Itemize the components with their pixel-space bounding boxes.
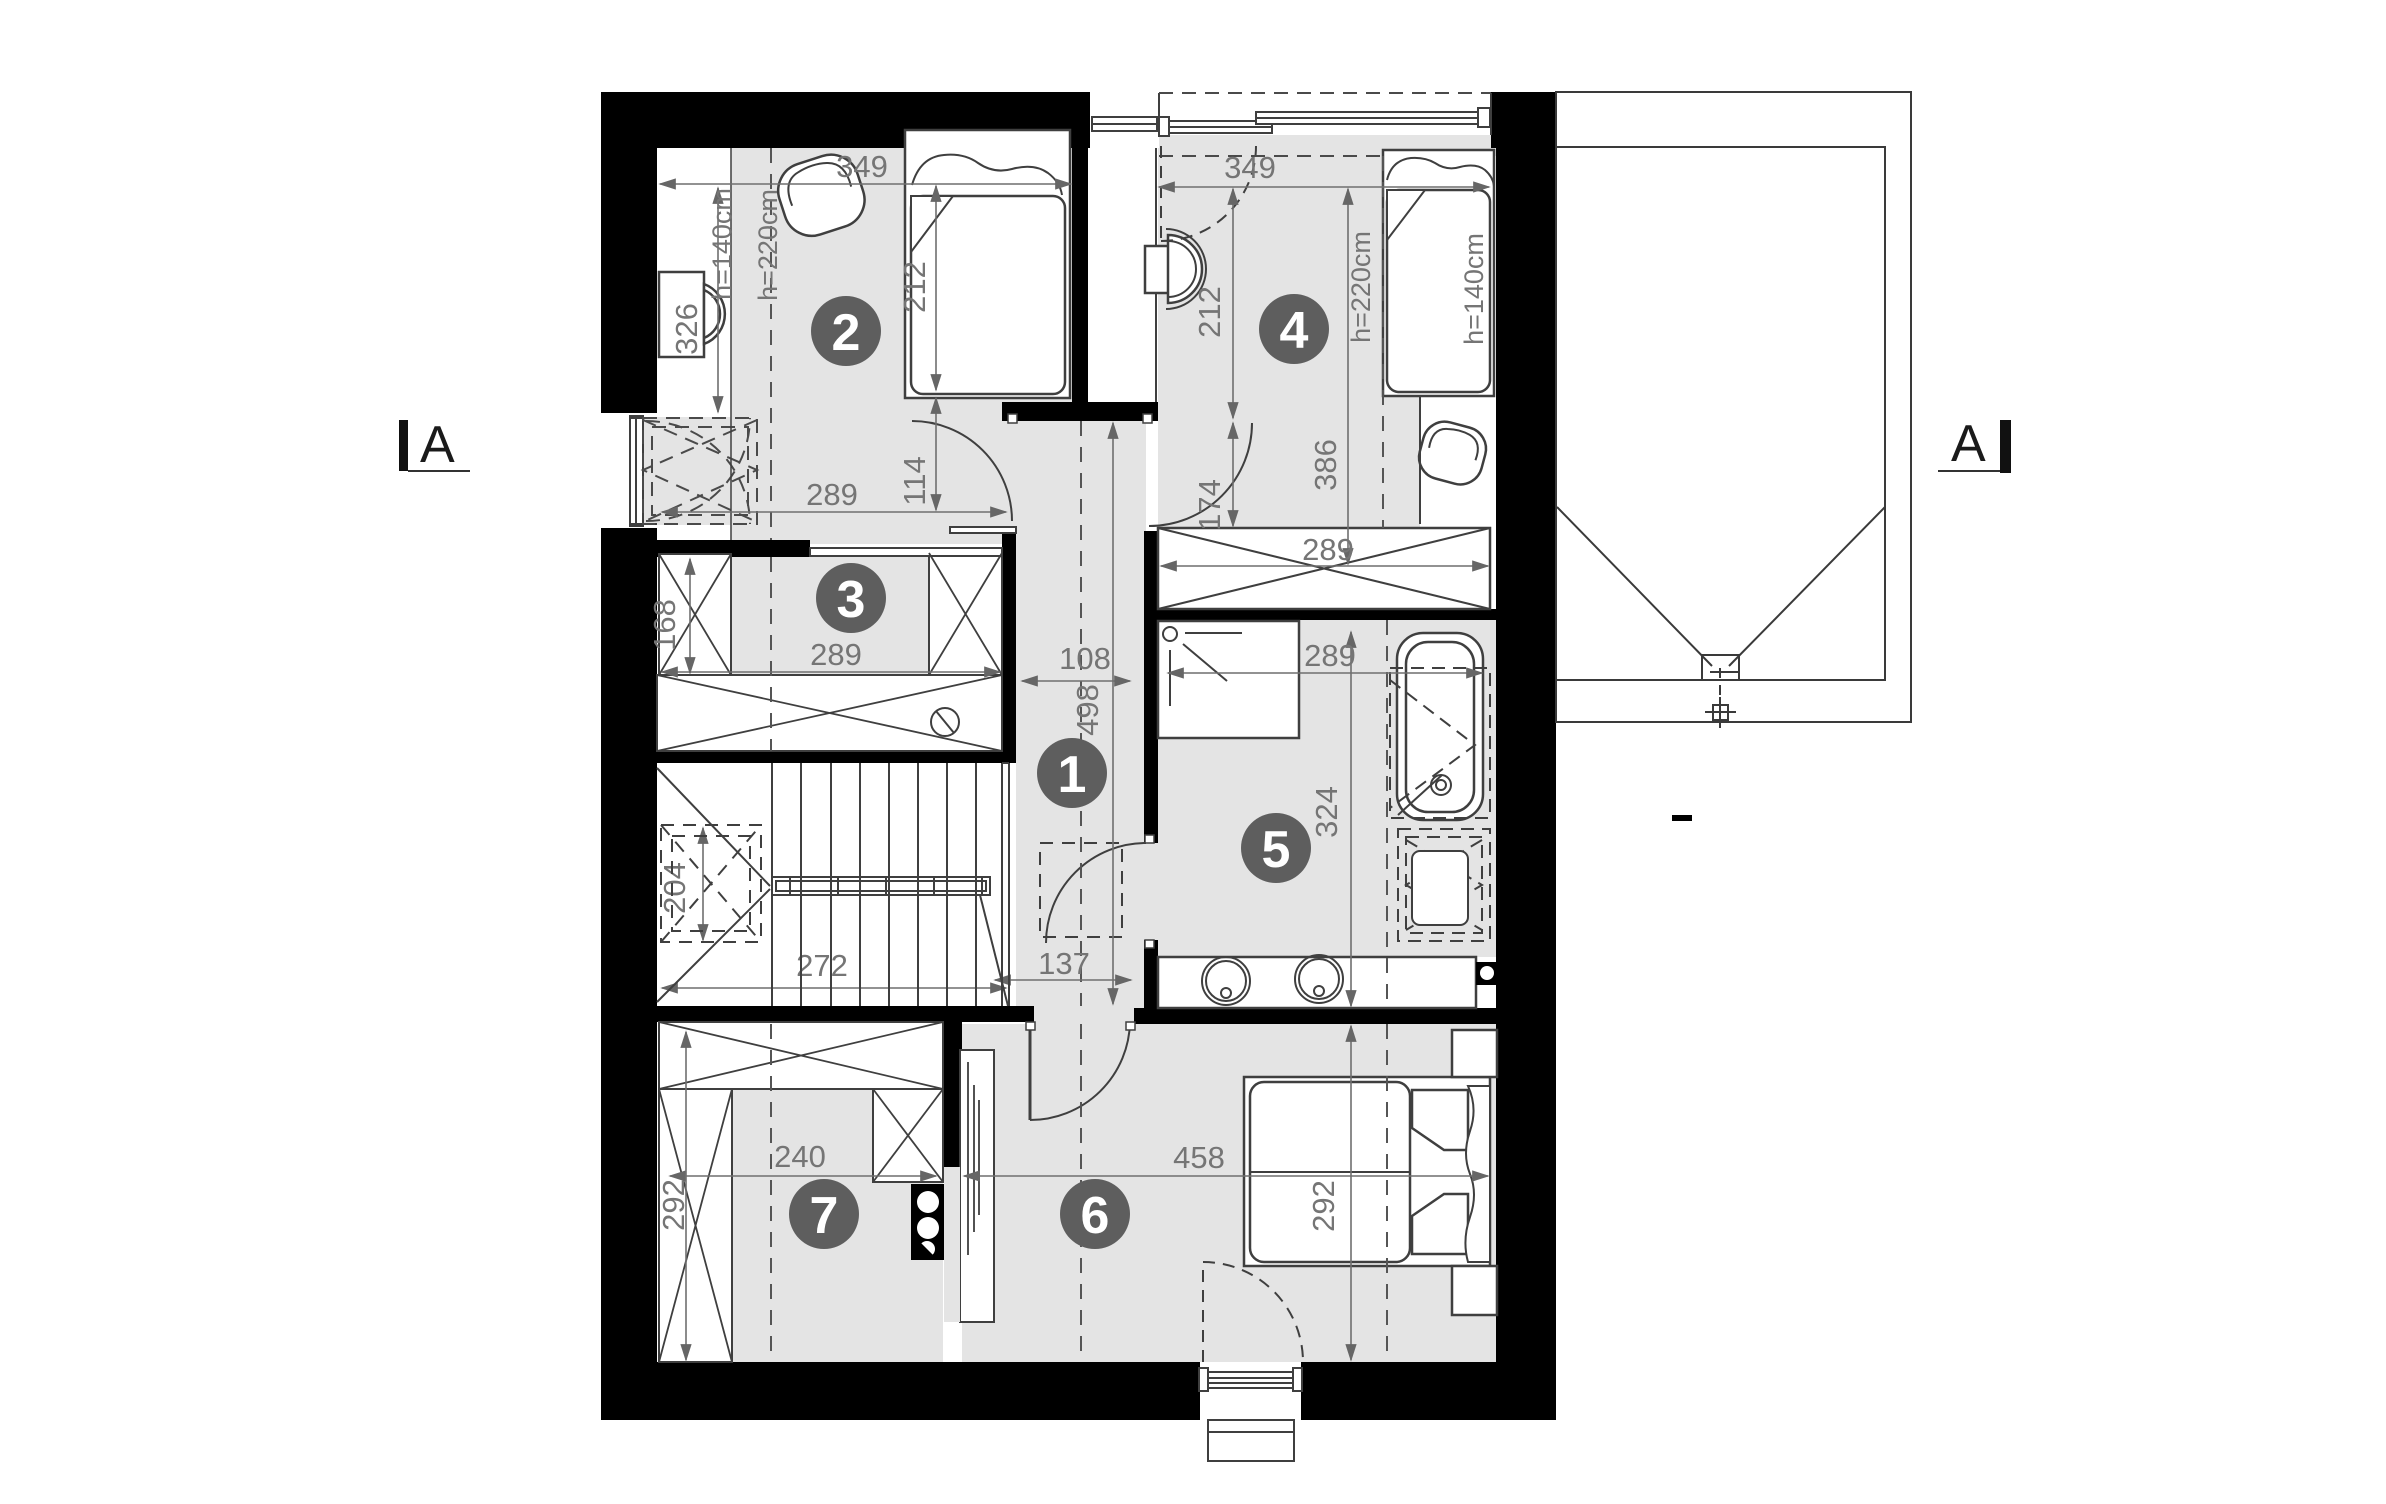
svg-text:292: 292 <box>1306 1180 1341 1232</box>
svg-text:349: 349 <box>1224 150 1276 185</box>
svg-text:1: 1 <box>1058 746 1087 804</box>
svg-text:h=220cm: h=220cm <box>753 189 783 301</box>
svg-text:289: 289 <box>810 637 862 672</box>
svg-text:204: 204 <box>657 862 692 914</box>
svg-text:212: 212 <box>1192 286 1227 338</box>
svg-text:3: 3 <box>837 571 866 629</box>
svg-text:137: 137 <box>1038 946 1090 981</box>
svg-text:A: A <box>1951 415 1986 473</box>
svg-text:289: 289 <box>806 477 858 512</box>
svg-text:7: 7 <box>810 1187 839 1245</box>
svg-text:349: 349 <box>836 149 888 184</box>
svg-text:2: 2 <box>832 304 861 362</box>
svg-text:114: 114 <box>897 456 932 505</box>
svg-text:272: 272 <box>796 948 848 983</box>
svg-text:108: 108 <box>1059 641 1111 676</box>
svg-text:324: 324 <box>1309 786 1344 838</box>
svg-text:6: 6 <box>1081 1187 1110 1245</box>
svg-text:h=140cm: h=140cm <box>1459 233 1489 345</box>
svg-text:458: 458 <box>1173 1140 1225 1175</box>
svg-text:498: 498 <box>1070 684 1105 736</box>
svg-text:5: 5 <box>1262 821 1291 879</box>
svg-text:168: 168 <box>647 599 682 651</box>
svg-text:240: 240 <box>774 1139 826 1174</box>
svg-text:289: 289 <box>1304 638 1356 673</box>
svg-text:h=220cm: h=220cm <box>1346 231 1376 343</box>
svg-text:292: 292 <box>656 1179 691 1231</box>
svg-text:212: 212 <box>897 261 932 313</box>
svg-text:A: A <box>420 416 455 474</box>
svg-text:174: 174 <box>1192 479 1227 531</box>
svg-text:326: 326 <box>669 303 704 355</box>
svg-text:386: 386 <box>1308 439 1343 491</box>
svg-text:289: 289 <box>1302 532 1354 567</box>
svg-text:4: 4 <box>1280 302 1309 360</box>
svg-text:h=140cm: h=140cm <box>707 188 737 300</box>
